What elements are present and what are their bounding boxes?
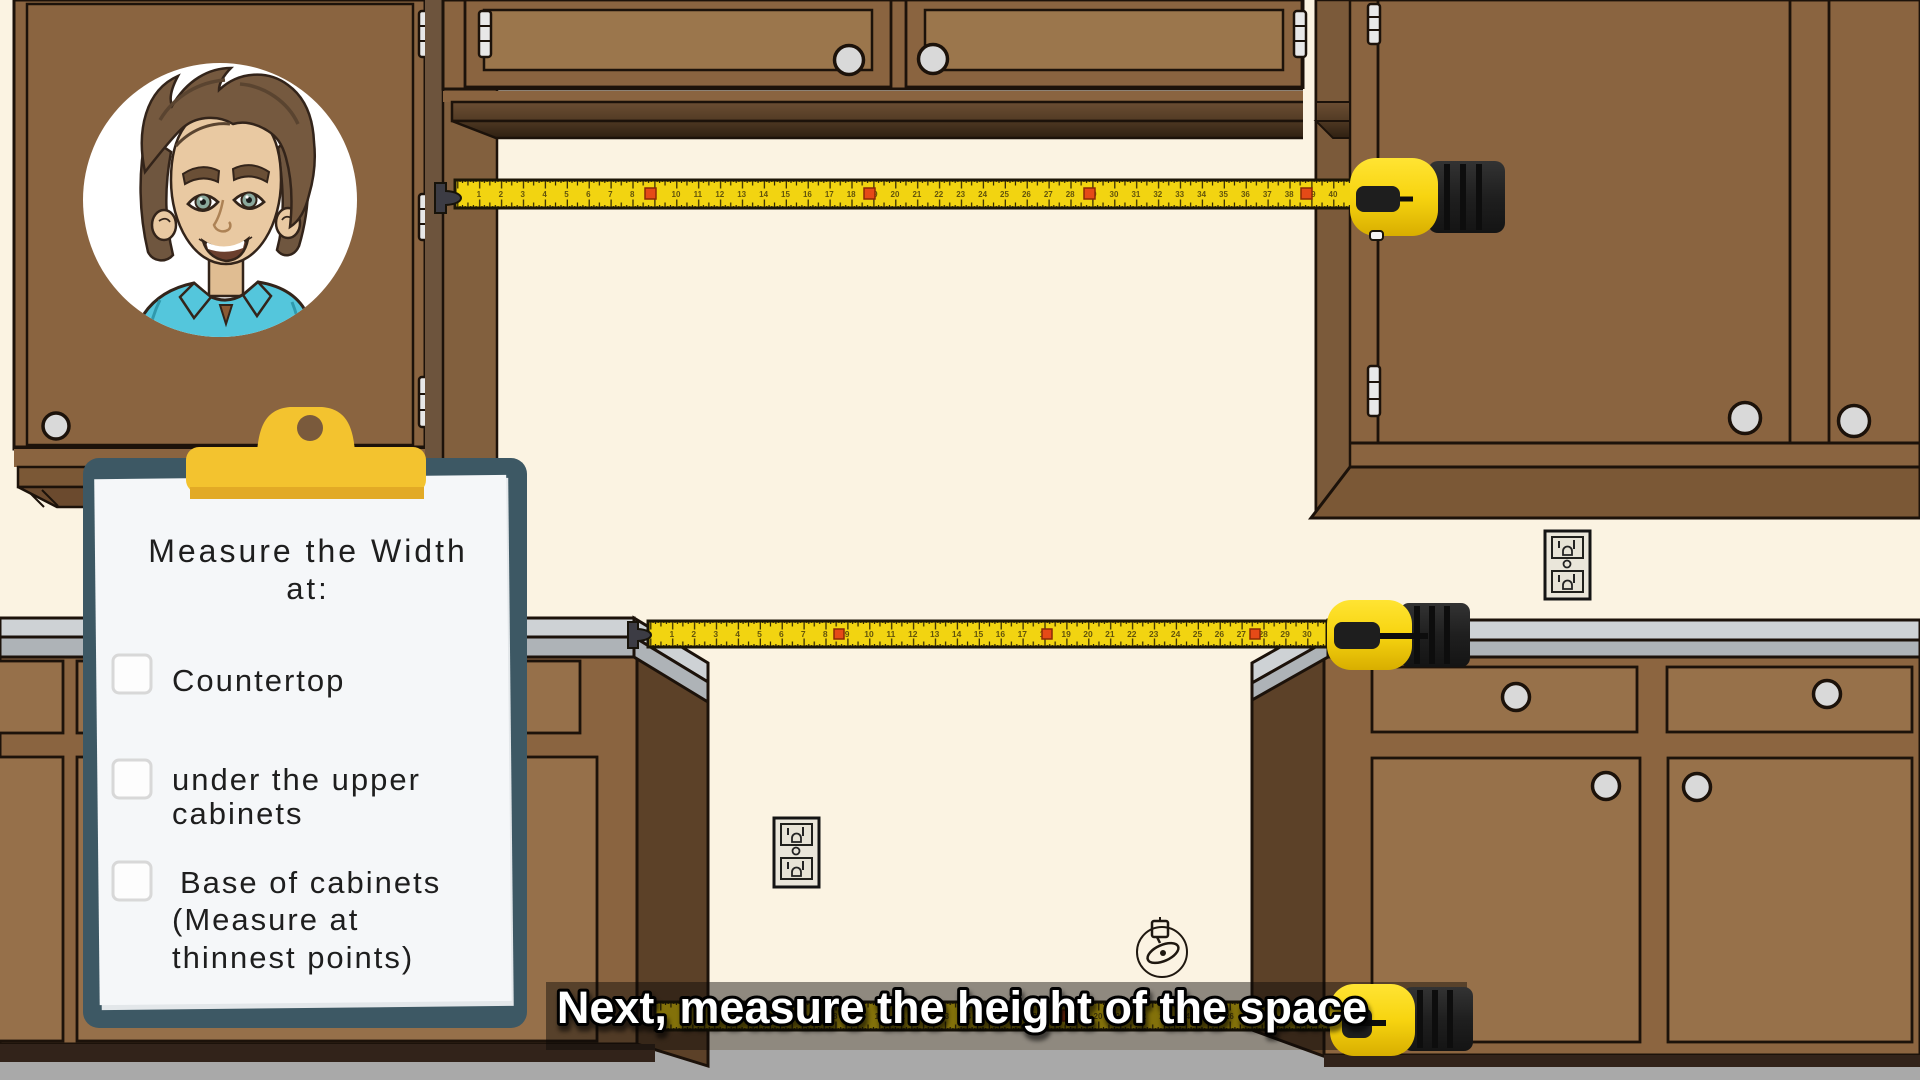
svg-text:27: 27 xyxy=(1237,629,1247,639)
svg-text:17: 17 xyxy=(1018,629,1028,639)
svg-text:28: 28 xyxy=(1066,190,1075,199)
svg-text:1: 1 xyxy=(477,190,482,199)
svg-text:14: 14 xyxy=(759,190,768,199)
svg-text:17: 17 xyxy=(825,190,834,199)
svg-text:3: 3 xyxy=(520,190,525,199)
svg-text:35: 35 xyxy=(1219,190,1228,199)
svg-text:40: 40 xyxy=(1329,190,1338,199)
svg-text:7: 7 xyxy=(801,629,806,639)
svg-text:26: 26 xyxy=(1022,190,1031,199)
svg-text:4: 4 xyxy=(542,190,547,199)
svg-text:23: 23 xyxy=(1149,629,1159,639)
svg-text:12: 12 xyxy=(715,190,724,199)
svg-text:27: 27 xyxy=(1044,190,1053,199)
svg-text:21: 21 xyxy=(1105,629,1115,639)
svg-text:6: 6 xyxy=(586,190,591,199)
svg-text:2: 2 xyxy=(691,629,696,639)
svg-text:4: 4 xyxy=(735,629,740,639)
svg-text:thinnest points): thinnest points) xyxy=(172,940,414,975)
svg-text:18: 18 xyxy=(847,190,856,199)
svg-text:15: 15 xyxy=(781,190,790,199)
svg-text:1: 1 xyxy=(670,629,675,639)
svg-text:8: 8 xyxy=(823,629,828,639)
svg-text:16: 16 xyxy=(996,629,1006,639)
svg-text:20: 20 xyxy=(1083,629,1093,639)
svg-text:5: 5 xyxy=(564,190,569,199)
svg-text:9: 9 xyxy=(845,629,850,639)
svg-text:25: 25 xyxy=(1000,190,1009,199)
svg-text:36: 36 xyxy=(1241,190,1250,199)
svg-text:24: 24 xyxy=(978,190,987,199)
svg-text:23: 23 xyxy=(956,190,965,199)
svg-text:10: 10 xyxy=(672,190,681,199)
svg-text:37: 37 xyxy=(1263,190,1272,199)
svg-text:26: 26 xyxy=(1215,629,1225,639)
svg-text:(Measure at: (Measure at xyxy=(172,902,359,937)
svg-text:3: 3 xyxy=(713,629,718,639)
svg-text:25: 25 xyxy=(1193,629,1203,639)
svg-text:20: 20 xyxy=(891,190,900,199)
svg-text:2: 2 xyxy=(499,190,504,199)
svg-text:24: 24 xyxy=(1171,629,1181,639)
svg-text:6: 6 xyxy=(779,629,784,639)
svg-text:under the upper: under the upper xyxy=(172,762,421,797)
svg-text:14: 14 xyxy=(952,629,962,639)
svg-text:Base of cabinets: Base of cabinets xyxy=(180,865,441,900)
svg-text:16: 16 xyxy=(803,190,812,199)
svg-text:11: 11 xyxy=(694,190,703,199)
svg-text:Countertop: Countertop xyxy=(172,663,345,698)
svg-text:11: 11 xyxy=(886,629,895,639)
svg-text:31: 31 xyxy=(1131,190,1140,199)
svg-text:cabinets: cabinets xyxy=(172,796,303,831)
svg-text:30: 30 xyxy=(1110,190,1119,199)
svg-text:Measure the Width: Measure the Width xyxy=(148,533,468,569)
svg-text:8: 8 xyxy=(630,190,635,199)
svg-text:19: 19 xyxy=(1061,629,1071,639)
svg-text:12: 12 xyxy=(908,629,918,639)
svg-text:21: 21 xyxy=(912,190,921,199)
svg-text:34: 34 xyxy=(1197,190,1206,199)
svg-text:Next, measure the height of th: Next, measure the height of the space xyxy=(557,982,1367,1033)
svg-text:38: 38 xyxy=(1285,190,1294,199)
svg-text:32: 32 xyxy=(1153,190,1162,199)
svg-text:29: 29 xyxy=(1280,629,1290,639)
svg-text:13: 13 xyxy=(930,629,940,639)
svg-text:15: 15 xyxy=(974,629,984,639)
svg-text:7: 7 xyxy=(608,190,613,199)
svg-text:at:: at: xyxy=(286,571,329,606)
svg-text:13: 13 xyxy=(737,190,746,199)
svg-text:33: 33 xyxy=(1175,190,1184,199)
svg-text:5: 5 xyxy=(757,629,762,639)
svg-text:30: 30 xyxy=(1302,629,1312,639)
svg-text:22: 22 xyxy=(934,190,943,199)
svg-text:22: 22 xyxy=(1127,629,1137,639)
svg-text:10: 10 xyxy=(864,629,874,639)
